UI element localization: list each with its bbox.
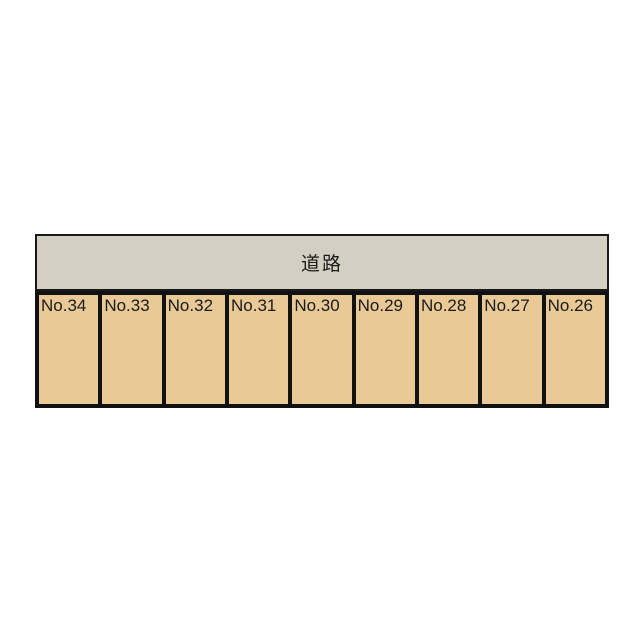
space-label: No.26 (548, 296, 593, 316)
space-label: No.31 (231, 296, 276, 316)
parking-map-canvas: 道路 No.34No.33No.32No.31No.30No.29No.28No… (0, 0, 640, 640)
parking-space: No.30 (292, 295, 355, 404)
parking-map-diagram: 道路 No.34No.33No.32No.31No.30No.29No.28No… (35, 234, 609, 408)
space-label: No.33 (104, 296, 149, 316)
parking-space: No.26 (546, 295, 605, 404)
space-label: No.34 (41, 296, 86, 316)
space-label: No.27 (484, 296, 529, 316)
parking-space: No.34 (39, 295, 102, 404)
space-label: No.29 (358, 296, 403, 316)
space-label: No.28 (421, 296, 466, 316)
parking-space: No.29 (356, 295, 419, 404)
parking-row: No.34No.33No.32No.31No.30No.29No.28No.27… (35, 291, 609, 408)
space-label: No.32 (168, 296, 213, 316)
parking-space: No.31 (229, 295, 292, 404)
parking-space: No.27 (482, 295, 545, 404)
parking-space: No.33 (102, 295, 165, 404)
parking-space: No.32 (166, 295, 229, 404)
road-label: 道路 (301, 249, 343, 276)
space-label: No.30 (294, 296, 339, 316)
road-band: 道路 (35, 234, 609, 291)
parking-space: No.28 (419, 295, 482, 404)
